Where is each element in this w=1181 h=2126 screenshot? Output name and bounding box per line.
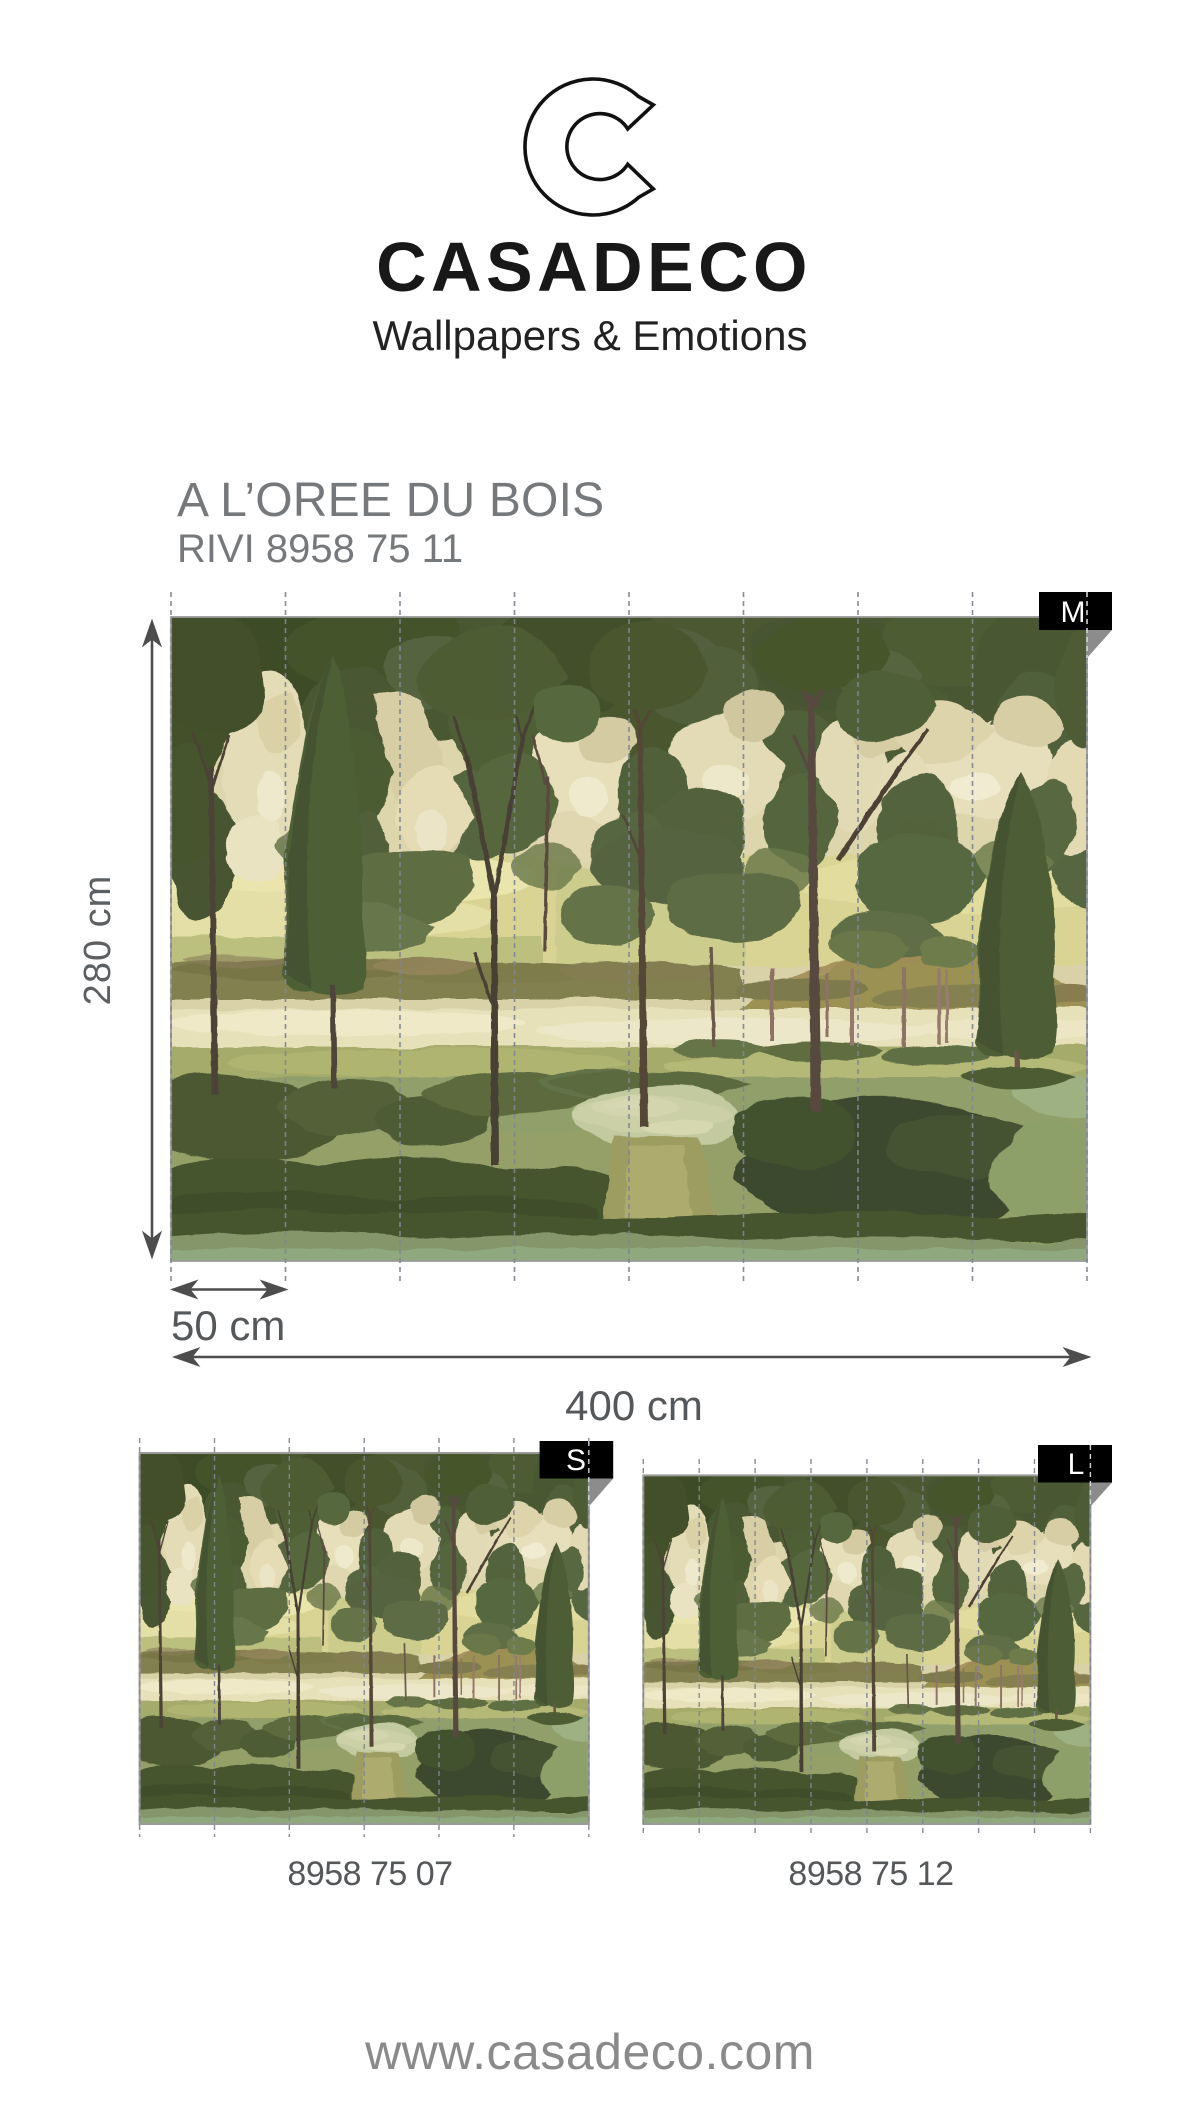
- svg-text:400 cm: 400 cm: [565, 1382, 703, 1429]
- svg-text:CASADECO: CASADECO: [376, 228, 812, 306]
- svg-text:280 cm: 280 cm: [77, 875, 119, 1006]
- svg-text:S: S: [566, 1444, 586, 1477]
- svg-text:L: L: [1068, 1448, 1085, 1481]
- svg-text:Wallpapers & Emotions: Wallpapers & Emotions: [373, 312, 808, 359]
- svg-text:M: M: [1061, 596, 1086, 629]
- svg-text:www.casadeco.com: www.casadeco.com: [364, 2024, 815, 2080]
- svg-text:8958 75 07: 8958 75 07: [287, 1855, 452, 1893]
- svg-text:A L’OREE DU BOIS: A L’OREE DU BOIS: [177, 474, 604, 527]
- svg-text:RIVI 8958 75 11: RIVI 8958 75 11: [177, 527, 463, 571]
- svg-text:8958 75 12: 8958 75 12: [788, 1855, 953, 1893]
- svg-text:50 cm: 50 cm: [171, 1302, 285, 1349]
